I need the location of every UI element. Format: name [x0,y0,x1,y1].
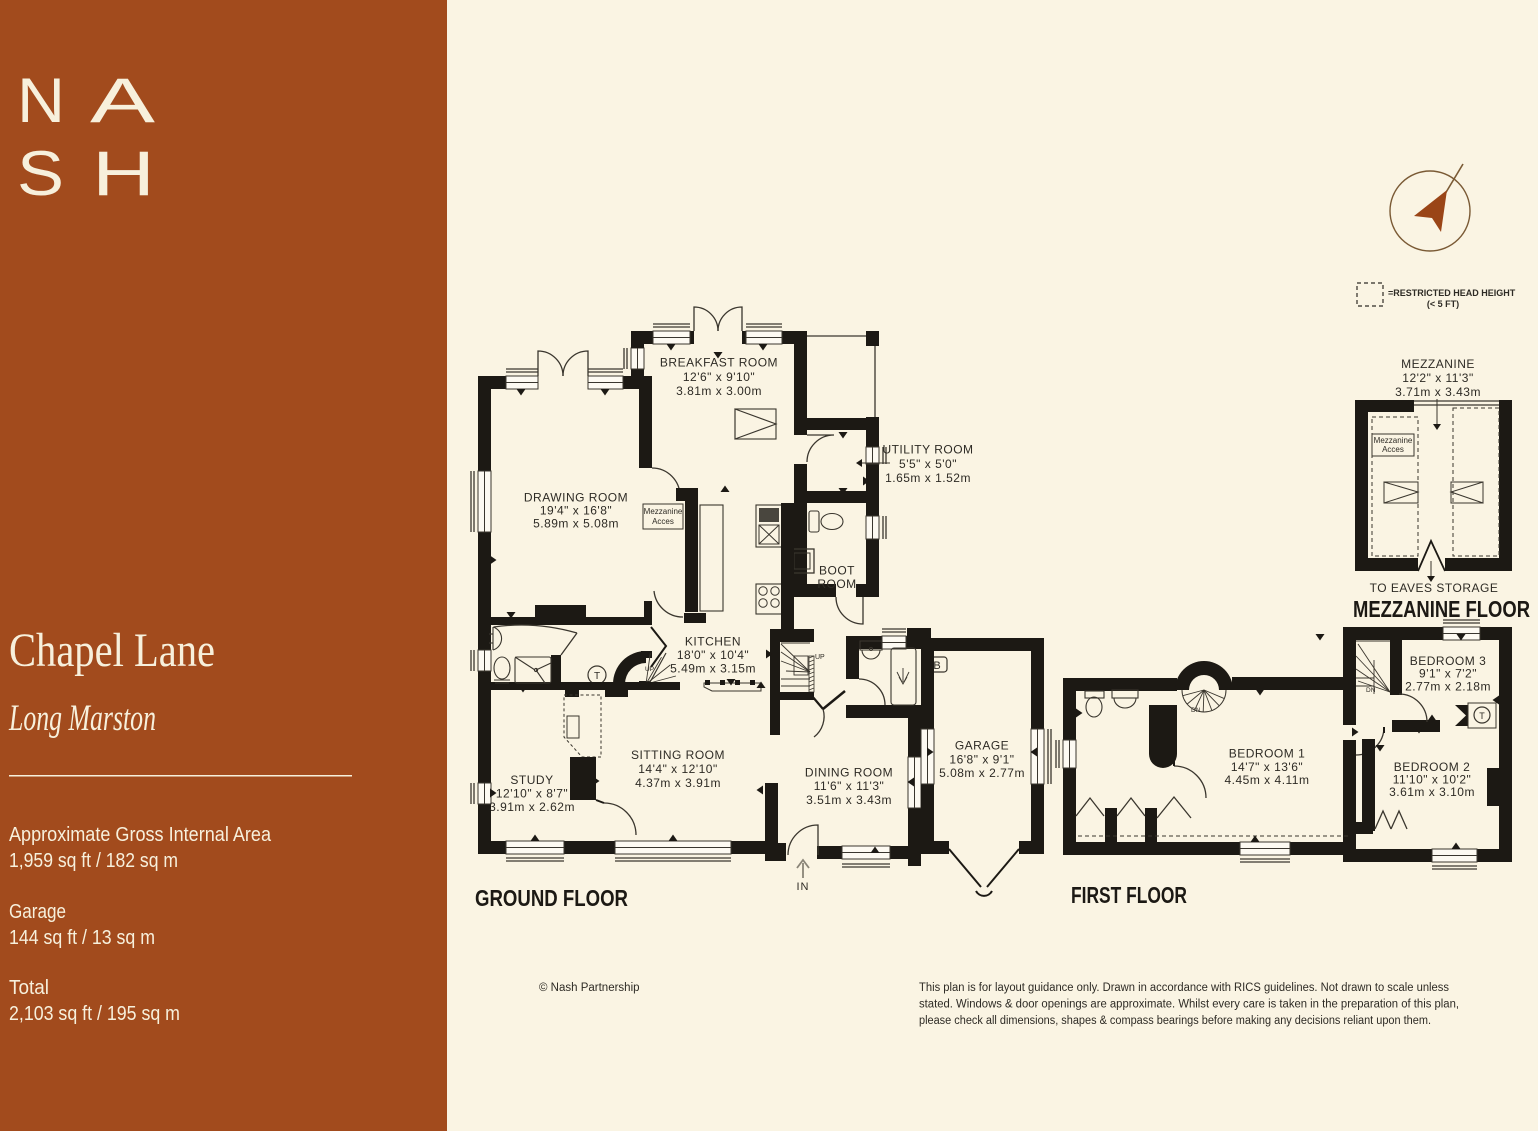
svg-text:Chapel Lane: Chapel Lane [9,624,215,677]
svg-text:N: N [17,66,65,136]
svg-text:UP: UP [815,654,825,661]
svg-text:BOOT: BOOT [819,564,855,578]
svg-text:19'4" x 16'8": 19'4" x 16'8" [540,504,612,518]
svg-text:DRAWING ROOM: DRAWING ROOM [524,491,628,505]
svg-text:B: B [933,660,940,672]
svg-text:4.37m x 3.91m: 4.37m x 3.91m [635,776,721,790]
svg-text:Total: Total [9,977,49,999]
svg-text:© Nash Partnership: © Nash Partnership [539,982,640,994]
svg-text:BEDROOM 1: BEDROOM 1 [1229,747,1306,761]
svg-text:KITCHEN: KITCHEN [685,634,741,648]
svg-text:1,959 sq ft / 182 sq m: 1,959 sq ft / 182 sq m [9,850,178,872]
svg-text:=RESTRICTED HEAD HEIGHT: =RESTRICTED HEAD HEIGHT [1388,288,1516,298]
svg-text:12'2" x 11'3": 12'2" x 11'3" [1402,371,1473,385]
svg-text:DINING ROOM: DINING ROOM [805,765,893,779]
svg-text:4.45m x 4.11m: 4.45m x 4.11m [1225,773,1310,787]
svg-text:UTILITY ROOM: UTILITY ROOM [882,443,973,457]
svg-text:Garage: Garage [9,901,66,923]
svg-text:please check all dimensions, s: please check all dimensions, shapes & co… [919,1015,1431,1027]
svg-text:14'7" x 13'6": 14'7" x 13'6" [1231,760,1303,774]
svg-text:STUDY: STUDY [510,773,553,787]
svg-text:18'0" x 10'4": 18'0" x 10'4" [677,648,749,662]
svg-text:T: T [1479,711,1485,721]
svg-text:ROOM: ROOM [817,577,856,591]
svg-text:Long Marston: Long Marston [8,698,156,739]
svg-text:DN: DN [1191,707,1201,714]
svg-text:This plan is for layout guidan: This plan is for layout guidance only. D… [919,982,1449,994]
svg-text:5.08m x 2.77m: 5.08m x 2.77m [939,766,1025,780]
svg-text:UP: UP [645,666,654,673]
svg-text:3.81m x 3.00m: 3.81m x 3.00m [676,384,762,398]
svg-text:stated. Windows & door opening: stated. Windows & door openings are appr… [919,999,1459,1011]
svg-text:12'10" x 8'7": 12'10" x 8'7" [496,787,568,801]
svg-text:Approximate Gross Internal Are: Approximate Gross Internal Area [9,824,272,846]
svg-text:12'6" x 9'10": 12'6" x 9'10" [683,370,755,384]
svg-text:11'6" x 11'3": 11'6" x 11'3" [814,779,885,793]
svg-text:GARAGE: GARAGE [955,739,1009,753]
svg-text:T: T [594,671,600,682]
svg-text:TO EAVES STORAGE: TO EAVES STORAGE [1370,581,1499,595]
svg-text:Acces: Acces [652,517,674,526]
svg-text:IN: IN [797,881,810,893]
svg-text:5.89m x 5.08m: 5.89m x 5.08m [533,517,619,531]
svg-text:H: H [92,139,155,209]
svg-text:3.71m x 3.43m: 3.71m x 3.43m [1395,385,1481,399]
svg-text:Mezzanine: Mezzanine [1374,436,1413,445]
svg-text:2,103 sq ft / 195 sq m: 2,103 sq ft / 195 sq m [9,1003,180,1025]
svg-text:5'5" x 5'0": 5'5" x 5'0" [899,457,957,471]
svg-text:FIRST FLOOR: FIRST FLOOR [1071,882,1187,908]
svg-text:3.91m x 2.62m: 3.91m x 2.62m [489,800,575,814]
svg-text:3.51m x 3.43m: 3.51m x 3.43m [806,793,892,807]
svg-text:1.65m x 1.52m: 1.65m x 1.52m [885,471,971,485]
svg-text:2.77m x 2.18m: 2.77m x 2.18m [1405,679,1491,693]
svg-text:MEZZANINE: MEZZANINE [1401,357,1475,371]
svg-text:S: S [17,139,64,209]
svg-text:3.61m x 3.10m: 3.61m x 3.10m [1389,785,1475,799]
svg-text:BREAKFAST ROOM: BREAKFAST ROOM [660,356,778,370]
svg-text:14'4" x 12'10": 14'4" x 12'10" [638,762,718,776]
svg-text:A: A [90,66,155,136]
svg-text:(< 5 FT): (< 5 FT) [1427,299,1459,309]
svg-text:MEZZANINE FLOOR: MEZZANINE FLOOR [1353,596,1530,622]
svg-text:GROUND FLOOR: GROUND FLOOR [475,885,628,911]
svg-text:144 sq ft / 13 sq m: 144 sq ft / 13 sq m [9,927,155,949]
svg-text:16'8" x 9'1": 16'8" x 9'1" [949,752,1014,766]
svg-text:5.49m x 3.15m: 5.49m x 3.15m [670,661,756,675]
svg-text:SITTING ROOM: SITTING ROOM [631,748,725,762]
svg-text:DN: DN [1366,687,1376,694]
svg-text:Acces: Acces [1382,445,1404,454]
svg-text:Mezzanine: Mezzanine [644,507,683,516]
